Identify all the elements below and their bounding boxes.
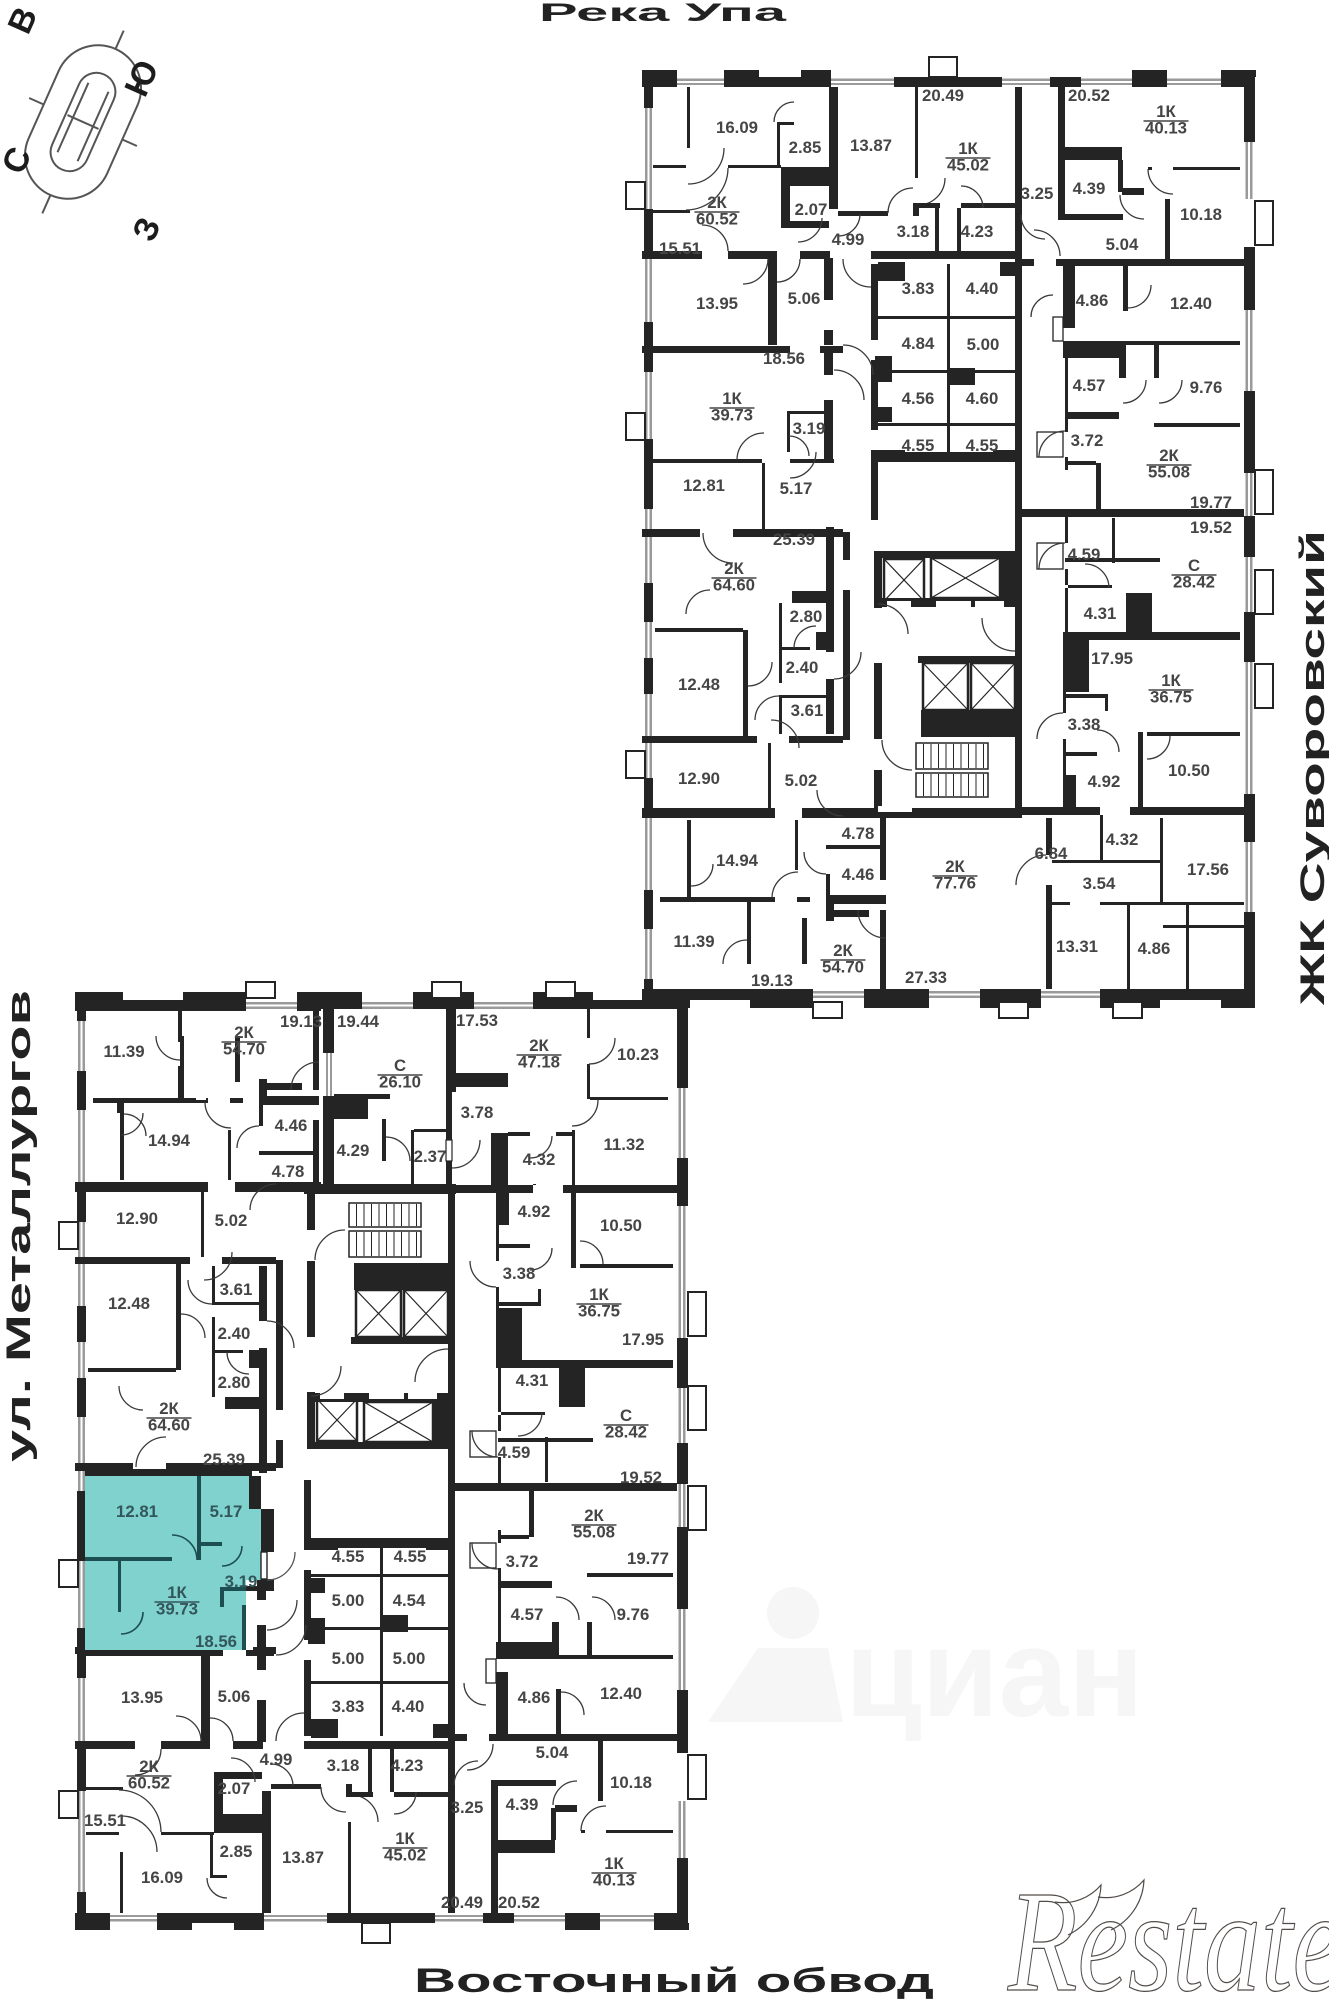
svg-text:4.86: 4.86 [518, 1688, 551, 1707]
svg-text:13.87: 13.87 [850, 136, 892, 155]
svg-text:12.40: 12.40 [1170, 294, 1212, 313]
svg-text:12.90: 12.90 [678, 769, 720, 788]
svg-text:4.99: 4.99 [832, 230, 865, 249]
svg-text:4.23: 4.23 [961, 222, 994, 241]
svg-text:4.57: 4.57 [1073, 376, 1106, 395]
svg-text:12.90: 12.90 [116, 1209, 158, 1228]
svg-text:3.72: 3.72 [506, 1552, 539, 1571]
svg-text:26.10: 26.10 [379, 1073, 421, 1092]
svg-text:4.92: 4.92 [518, 1202, 551, 1221]
svg-text:47.18: 47.18 [518, 1053, 560, 1072]
svg-text:36.75: 36.75 [578, 1302, 620, 1321]
svg-text:4.31: 4.31 [516, 1371, 549, 1390]
svg-text:19.77: 19.77 [627, 1549, 669, 1568]
svg-text:27.33: 27.33 [905, 968, 947, 987]
svg-text:4.40: 4.40 [392, 1697, 425, 1716]
svg-text:4.86: 4.86 [1138, 939, 1171, 958]
svg-text:4.59: 4.59 [498, 1443, 531, 1462]
svg-text:11.32: 11.32 [603, 1135, 644, 1154]
svg-text:4.23: 4.23 [391, 1756, 424, 1775]
svg-text:5.02: 5.02 [785, 771, 818, 790]
svg-text:5.02: 5.02 [215, 1211, 248, 1230]
svg-text:Restate: Restate [1007, 1862, 1329, 2000]
svg-text:4.92: 4.92 [1088, 772, 1121, 791]
svg-text:5.06: 5.06 [218, 1687, 251, 1706]
svg-text:20.49: 20.49 [922, 86, 964, 105]
svg-text:2.85: 2.85 [789, 138, 822, 157]
svg-text:5.04: 5.04 [1106, 235, 1139, 254]
svg-text:4.55: 4.55 [966, 436, 999, 455]
svg-text:3.83: 3.83 [902, 279, 935, 298]
svg-text:Река Упа: Река Упа [539, 0, 789, 27]
svg-text:4.57: 4.57 [511, 1605, 544, 1624]
svg-text:17.95: 17.95 [1091, 649, 1133, 668]
svg-text:13.95: 13.95 [696, 294, 738, 313]
svg-text:16.09: 16.09 [141, 1868, 183, 1887]
svg-text:19.52: 19.52 [620, 1468, 662, 1487]
svg-text:55.08: 55.08 [1148, 463, 1190, 482]
svg-text:64.60: 64.60 [148, 1416, 190, 1435]
svg-text:Восточный обвод: Восточный обвод [414, 1962, 934, 2000]
svg-text:5.00: 5.00 [393, 1649, 426, 1668]
svg-text:4.56: 4.56 [902, 389, 935, 408]
svg-text:18.56: 18.56 [195, 1632, 237, 1651]
svg-text:39.73: 39.73 [711, 406, 753, 425]
svg-text:19.77: 19.77 [1190, 493, 1232, 512]
svg-text:4.32: 4.32 [1106, 830, 1139, 849]
svg-text:4.40: 4.40 [966, 279, 999, 298]
svg-text:5.00: 5.00 [332, 1591, 365, 1610]
svg-text:4.84: 4.84 [902, 334, 935, 353]
svg-text:2.07: 2.07 [795, 200, 828, 219]
svg-text:12.81: 12.81 [116, 1502, 158, 1521]
svg-text:3.78: 3.78 [461, 1103, 494, 1122]
svg-text:77.76: 77.76 [934, 874, 976, 893]
svg-text:45.02: 45.02 [384, 1846, 426, 1865]
svg-text:20.52: 20.52 [498, 1893, 540, 1912]
svg-text:12.48: 12.48 [678, 675, 720, 694]
svg-text:15.51: 15.51 [659, 239, 701, 258]
svg-text:3.18: 3.18 [897, 222, 930, 241]
svg-text:18.56: 18.56 [763, 349, 805, 368]
svg-text:4.86: 4.86 [1076, 291, 1109, 310]
svg-text:40.13: 40.13 [593, 1871, 635, 1890]
svg-text:45.02: 45.02 [947, 156, 989, 175]
svg-text:4.55: 4.55 [394, 1547, 427, 1566]
svg-text:4.55: 4.55 [332, 1547, 365, 1566]
svg-text:20.52: 20.52 [1068, 86, 1110, 105]
svg-text:16.09: 16.09 [716, 118, 758, 137]
svg-text:10.23: 10.23 [617, 1045, 659, 1064]
svg-text:60.52: 60.52 [696, 210, 738, 229]
svg-text:64.60: 64.60 [713, 576, 755, 595]
svg-text:2.80: 2.80 [790, 607, 823, 626]
svg-text:25.39: 25.39 [773, 530, 815, 549]
svg-text:25.39: 25.39 [203, 1450, 245, 1469]
svg-text:17.56: 17.56 [1187, 860, 1229, 879]
svg-text:28.42: 28.42 [1173, 573, 1215, 592]
svg-text:3.38: 3.38 [1068, 715, 1101, 734]
svg-text:19.44: 19.44 [337, 1012, 380, 1031]
svg-text:12.40: 12.40 [600, 1684, 642, 1703]
svg-text:9.76: 9.76 [1190, 378, 1223, 397]
svg-text:13.95: 13.95 [121, 1688, 163, 1707]
svg-text:14.94: 14.94 [148, 1131, 191, 1150]
svg-text:17.53: 17.53 [456, 1011, 498, 1030]
svg-text:5.17: 5.17 [210, 1502, 243, 1521]
svg-text:4.31: 4.31 [1084, 604, 1117, 623]
svg-text:4.78: 4.78 [272, 1162, 305, 1181]
svg-text:5.04: 5.04 [536, 1743, 569, 1762]
svg-text:17.95: 17.95 [622, 1330, 664, 1349]
svg-text:19.13: 19.13 [751, 971, 793, 990]
svg-text:4.55: 4.55 [902, 436, 935, 455]
svg-text:2.40: 2.40 [786, 658, 819, 677]
svg-text:4.54: 4.54 [393, 1591, 426, 1610]
svg-text:15.51: 15.51 [84, 1811, 126, 1830]
svg-text:5.00: 5.00 [332, 1649, 365, 1668]
svg-text:2.40: 2.40 [218, 1324, 251, 1343]
svg-text:циан: циан [845, 1604, 1144, 1743]
svg-text:4.59: 4.59 [1068, 545, 1101, 564]
svg-text:39.73: 39.73 [156, 1600, 198, 1619]
svg-text:3.61: 3.61 [220, 1280, 253, 1299]
svg-text:6.84: 6.84 [1035, 844, 1068, 863]
svg-text:4.39: 4.39 [506, 1795, 539, 1814]
svg-text:3.19: 3.19 [225, 1572, 258, 1591]
svg-text:54.70: 54.70 [822, 958, 864, 977]
svg-text:4.99: 4.99 [260, 1750, 293, 1769]
svg-text:54.70: 54.70 [223, 1040, 265, 1059]
svg-text:4.29: 4.29 [337, 1141, 370, 1160]
svg-text:3.25: 3.25 [1021, 184, 1054, 203]
svg-text:11.39: 11.39 [103, 1042, 144, 1061]
svg-text:20.49: 20.49 [441, 1893, 483, 1912]
svg-text:11.39: 11.39 [673, 932, 714, 951]
svg-text:13.31: 13.31 [1056, 937, 1098, 956]
svg-text:3.19: 3.19 [793, 419, 826, 438]
svg-text:14.94: 14.94 [716, 851, 759, 870]
svg-text:3.83: 3.83 [332, 1697, 365, 1716]
svg-text:10.50: 10.50 [1168, 761, 1210, 780]
svg-text:5.06: 5.06 [788, 289, 821, 308]
svg-text:5.00: 5.00 [967, 335, 1000, 354]
svg-text:3.25: 3.25 [451, 1798, 484, 1817]
svg-text:13.87: 13.87 [282, 1848, 324, 1867]
svg-text:5.17: 5.17 [780, 479, 813, 498]
svg-text:ЖК Суворовский: ЖК Суворовский [1294, 530, 1329, 1007]
svg-text:19.52: 19.52 [1190, 518, 1232, 537]
svg-text:2.80: 2.80 [218, 1373, 251, 1392]
svg-text:4.78: 4.78 [842, 824, 875, 843]
svg-text:3.38: 3.38 [503, 1264, 536, 1283]
svg-text:40.13: 40.13 [1145, 119, 1187, 138]
svg-text:10.18: 10.18 [1180, 205, 1222, 224]
svg-text:4.39: 4.39 [1073, 179, 1106, 198]
svg-text:4.46: 4.46 [275, 1116, 308, 1135]
svg-text:12.81: 12.81 [683, 476, 725, 495]
svg-text:10.50: 10.50 [600, 1216, 642, 1235]
svg-text:ул. Металлургов: ул. Металлургов [0, 990, 38, 1462]
svg-text:19.13: 19.13 [280, 1012, 322, 1031]
svg-text:3.61: 3.61 [791, 701, 824, 720]
svg-text:3.72: 3.72 [1071, 431, 1104, 450]
svg-text:4.46: 4.46 [842, 865, 875, 884]
svg-text:2.85: 2.85 [220, 1842, 253, 1861]
svg-text:2.37: 2.37 [414, 1147, 447, 1166]
svg-text:28.42: 28.42 [605, 1423, 647, 1442]
svg-text:2.07: 2.07 [218, 1779, 251, 1798]
svg-text:3.18: 3.18 [327, 1756, 360, 1775]
svg-text:9.76: 9.76 [617, 1605, 650, 1624]
svg-text:3.54: 3.54 [1083, 874, 1116, 893]
svg-text:10.18: 10.18 [610, 1773, 652, 1792]
svg-text:4.60: 4.60 [966, 389, 999, 408]
svg-text:36.75: 36.75 [1150, 688, 1192, 707]
svg-text:4.32: 4.32 [523, 1150, 556, 1169]
svg-text:60.52: 60.52 [128, 1774, 170, 1793]
svg-text:12.48: 12.48 [108, 1294, 150, 1313]
svg-text:55.08: 55.08 [573, 1523, 615, 1542]
